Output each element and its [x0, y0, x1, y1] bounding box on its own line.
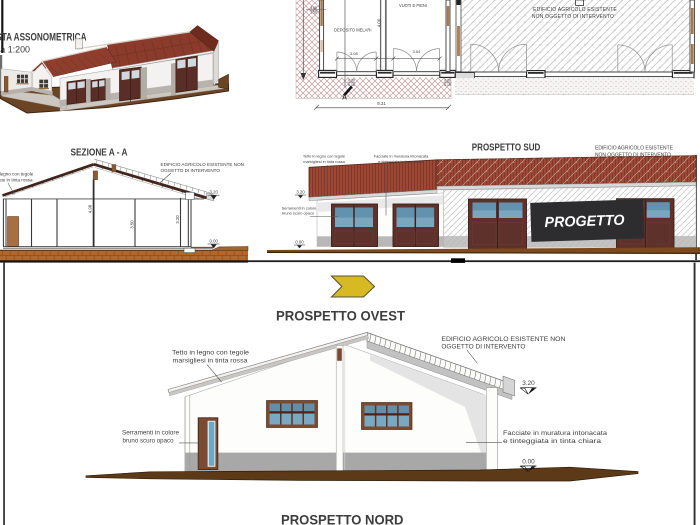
svg-text:3.08: 3.08 — [350, 51, 359, 56]
svg-text:EDIFICIO AGRICOLO ESISTENTE: EDIFICIO AGRICOLO ESISTENTE — [595, 145, 674, 151]
svg-text:Scala 1:200: Scala 1:200 — [0, 44, 30, 55]
svg-text:PROGETTO: PROGETTO — [544, 213, 625, 232]
svg-text:VUOTI E PIENI: VUOTI E PIENI — [399, 3, 427, 9]
svg-text:9.31: 9.31 — [377, 101, 386, 106]
svg-text:Serramenti in colore: Serramenti in colore — [122, 430, 179, 437]
svg-text:0.30: 0.30 — [444, 79, 451, 83]
svg-text:3.50: 3.50 — [130, 220, 135, 229]
svg-text:PROSPETTO OVEST: PROSPETTO OVEST — [276, 309, 406, 324]
svg-text:DEPOSITO MELARI: DEPOSITO MELARI — [334, 28, 372, 34]
svg-text:0.00: 0.00 — [210, 238, 219, 243]
svg-text:3.20: 3.20 — [296, 189, 305, 194]
svg-text:e tinteggiata in tinta chiara: e tinteggiata in tinta chiara — [503, 438, 601, 445]
svg-text:0.30: 0.30 — [348, 79, 355, 83]
svg-text:EDIFICIO AGRICOLO ESISTENTE: EDIFICIO AGRICOLO ESISTENTE — [533, 7, 617, 13]
svg-text:marsigliesi in tinta rossa: marsigliesi in tinta rossa — [303, 159, 345, 164]
svg-text:Tetto in legno con tegole: Tetto in legno con tegole — [172, 350, 249, 357]
svg-text:NON OGGETTO DI INTERVENTO: NON OGGETTO DI INTERVENTO — [532, 14, 614, 20]
svg-text:4.00: 4.00 — [377, 18, 382, 27]
svg-text:marsigliesi in tinta rossa: marsigliesi in tinta rossa — [0, 178, 33, 183]
svg-text:Facciate in muratura intonacat: Facciate in muratura intonacata — [503, 430, 607, 437]
svg-text:PROSPETTO NORD: PROSPETTO NORD — [281, 513, 404, 525]
svg-text:3.04: 3.04 — [413, 49, 422, 54]
svg-text:marsigliesi in tinta rossa: marsigliesi in tinta rossa — [173, 358, 248, 365]
svg-text:4.98: 4.98 — [87, 204, 92, 213]
svg-text:0.15: 0.15 — [444, 83, 451, 87]
svg-text:Tetto in legno con tegole: Tetto in legno con tegole — [0, 172, 34, 177]
svg-text:1.50: 1.50 — [310, 11, 317, 15]
svg-text:bruno scuro opaco: bruno scuro opaco — [123, 438, 174, 445]
svg-text:3.20: 3.20 — [210, 190, 219, 195]
svg-text:A: A — [342, 95, 347, 102]
svg-text:3.20: 3.20 — [522, 380, 535, 387]
svg-text:OGGETTO DI INTERVENTO: OGGETTO DI INTERVENTO — [441, 344, 525, 351]
svg-text:3.20: 3.20 — [175, 215, 180, 224]
svg-text:e tinteggiata in tinta chiara: e tinteggiata in tinta chiara — [378, 159, 424, 164]
svg-text:EDIFICIO AGRICOLO ESISTENTE NO: EDIFICIO AGRICOLO ESISTENTE NON — [441, 336, 565, 343]
svg-text:0.00: 0.00 — [295, 239, 304, 244]
svg-text:0.00: 0.00 — [522, 459, 535, 466]
svg-text:VISTA ASSONOMETRICA: VISTA ASSONOMETRICA — [0, 32, 87, 44]
svg-text:EDIFICIO AGRICOLO ESISTENTE NO: EDIFICIO AGRICOLO ESISTENTE NON — [161, 162, 244, 167]
svg-text:PROSPETTO SUD: PROSPETTO SUD — [472, 143, 541, 154]
svg-text:OGGETTO DI INTERVENTO: OGGETTO DI INTERVENTO — [161, 168, 221, 173]
svg-text:bruno scuro opaco: bruno scuro opaco — [282, 211, 314, 216]
svg-text:SEZIONE A - A: SEZIONE A - A — [71, 147, 128, 158]
